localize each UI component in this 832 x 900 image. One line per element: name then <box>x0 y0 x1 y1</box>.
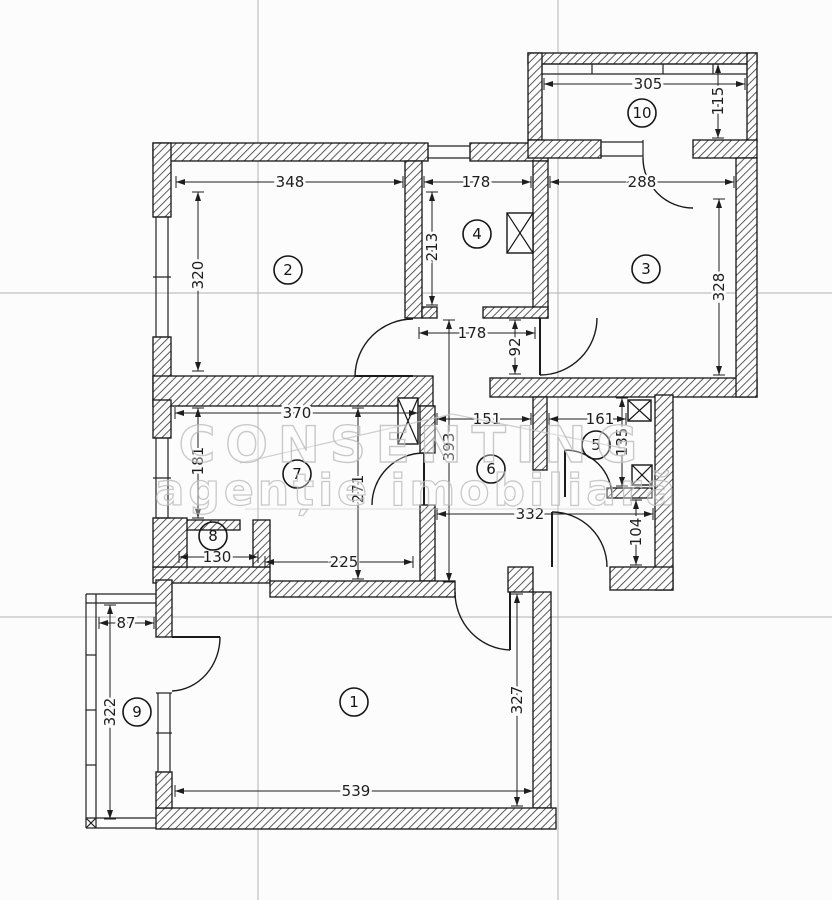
dimension-label: 322 <box>101 698 119 727</box>
door-room1-main <box>455 592 510 650</box>
room-number-label: 9 <box>132 703 142 721</box>
dimension: 328 <box>710 199 728 375</box>
room-number: 2 <box>274 256 302 284</box>
room-number-label: 2 <box>283 261 293 279</box>
window-room4 <box>428 143 470 161</box>
dimension: 225 <box>265 553 413 571</box>
floor-plan-page: 3481783052881783701511613321302258753932… <box>0 0 832 900</box>
dimension: 320 <box>189 192 207 371</box>
room-number-label: 1 <box>349 693 359 711</box>
dimension-label: 104 <box>627 518 645 547</box>
dimension-label: 348 <box>276 173 305 191</box>
dimension-label: 130 <box>203 548 232 566</box>
dimension-label: 320 <box>189 261 207 290</box>
room-number: 4 <box>463 220 491 248</box>
dimension: 348 <box>176 173 403 191</box>
dimension-label: 225 <box>330 553 359 571</box>
room-number-label: 8 <box>208 527 218 545</box>
window-room1-left <box>156 693 172 772</box>
door-room2-hall <box>355 319 413 376</box>
dimension: 130 <box>179 548 258 566</box>
dimension: 178 <box>424 173 531 191</box>
dimension-label: 327 <box>508 686 526 715</box>
room-number-label: 4 <box>472 225 482 243</box>
window-room2 <box>153 217 171 337</box>
door-room1-balcony9 <box>172 637 220 691</box>
dimension: 92 <box>506 320 524 374</box>
dimension-label: 213 <box>423 233 441 262</box>
watermark-tagline: agenție imobiliară <box>155 465 680 516</box>
door-hall-lower <box>552 512 607 567</box>
shaft-cross-icon <box>507 213 533 253</box>
dimension: 115 <box>709 64 727 138</box>
dimension: 213 <box>423 192 441 305</box>
room-number: 10 <box>628 99 656 127</box>
room-number-label: 10 <box>632 104 651 122</box>
dimension-label: 539 <box>342 782 371 800</box>
dimension: 322 <box>101 605 119 819</box>
dimension: 288 <box>550 173 734 191</box>
dimension-label: 288 <box>628 173 657 191</box>
room-number: 9 <box>123 698 151 726</box>
watermark: CONSENTING agenție imobiliară <box>155 414 680 516</box>
dimension-label: 305 <box>634 75 663 93</box>
floor-plan-drawing: 3481783052881783701511613321302258753932… <box>0 0 832 900</box>
dimension-label: 87 <box>116 614 135 632</box>
dimension-label: 178 <box>462 173 491 191</box>
room-number-label: 3 <box>641 260 651 278</box>
dimension: 539 <box>175 782 533 800</box>
dimension-label: 92 <box>506 337 524 356</box>
room-number: 1 <box>340 688 368 716</box>
door-hall-room3 <box>540 318 597 375</box>
dimension-label: 328 <box>710 273 728 302</box>
room-number: 3 <box>632 255 660 283</box>
room-number: 8 <box>199 522 227 550</box>
window-room3 <box>601 140 643 158</box>
dimension-label: 115 <box>709 87 727 116</box>
dimension-label: 178 <box>458 324 487 342</box>
